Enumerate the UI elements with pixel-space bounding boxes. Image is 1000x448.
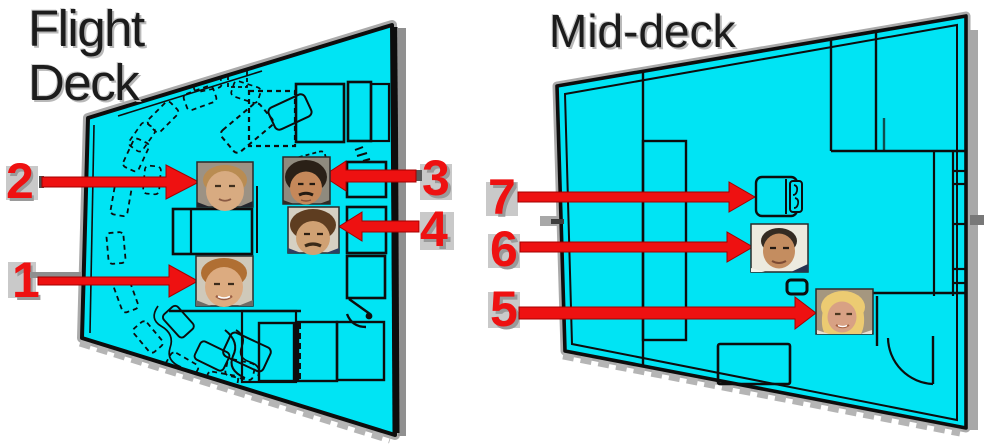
svg-text:2: 2 bbox=[6, 153, 34, 209]
svg-text:3: 3 bbox=[422, 150, 450, 206]
svg-text:4: 4 bbox=[420, 201, 448, 257]
svg-text:5: 5 bbox=[490, 281, 518, 337]
svg-text:1: 1 bbox=[12, 252, 40, 308]
svg-text:Flight: Flight bbox=[28, 0, 145, 57]
svg-text:Mid-deck: Mid-deck bbox=[549, 5, 737, 57]
svg-text:Deck: Deck bbox=[28, 54, 140, 111]
svg-text:6: 6 bbox=[490, 221, 518, 277]
svg-text:7: 7 bbox=[488, 169, 516, 225]
